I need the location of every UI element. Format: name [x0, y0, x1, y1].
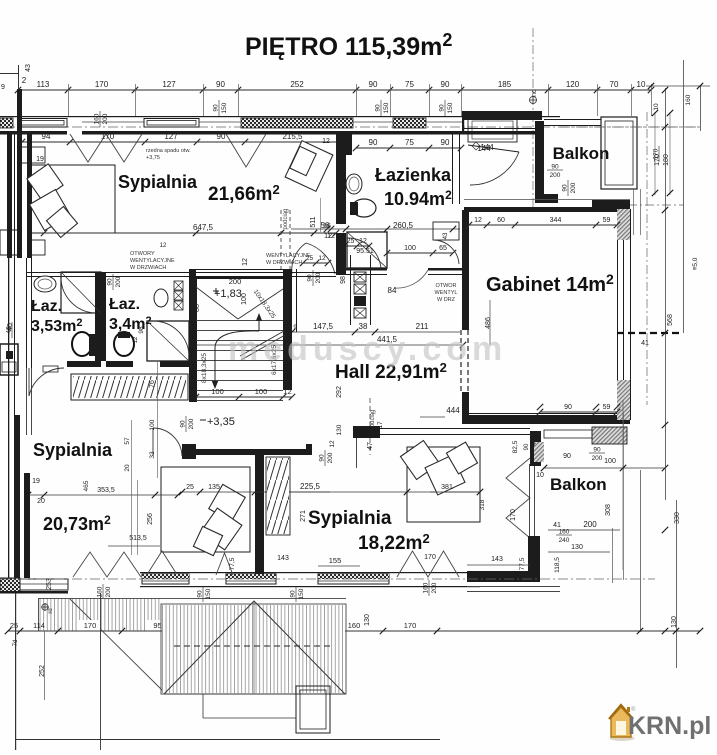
- svg-text:143: 143: [491, 556, 503, 563]
- svg-text:160: 160: [94, 113, 101, 124]
- svg-text:170: 170: [510, 509, 517, 521]
- svg-text:12: 12: [318, 255, 326, 262]
- svg-text:+3,35: +3,35: [207, 416, 235, 428]
- svg-text:200: 200: [188, 418, 195, 429]
- svg-text:77,5: 77,5: [229, 557, 236, 570]
- svg-text:100: 100: [255, 387, 268, 396]
- svg-text:95.51: 95.51: [356, 248, 374, 255]
- svg-text:77,5: 77,5: [519, 557, 526, 570]
- svg-text:84: 84: [388, 286, 397, 295]
- svg-text:W DRZ: W DRZ: [437, 297, 456, 303]
- svg-text:Gabinet 14m2: Gabinet 14m2: [486, 271, 614, 296]
- svg-text:KRN.pl: KRN.pl: [628, 712, 711, 740]
- svg-text:≡5,0: ≡5,0: [692, 257, 699, 270]
- svg-text:75: 75: [405, 138, 414, 147]
- svg-text:130: 130: [571, 544, 583, 551]
- svg-text:465: 465: [83, 480, 90, 491]
- svg-text:100: 100: [149, 419, 156, 430]
- svg-text:90: 90: [375, 104, 382, 112]
- svg-text:76: 76: [149, 380, 156, 388]
- svg-text:100: 100: [404, 245, 416, 252]
- svg-text:60: 60: [497, 217, 505, 224]
- svg-text:100: 100: [604, 458, 616, 465]
- svg-text:127: 127: [164, 132, 178, 141]
- svg-text:W DRZWIACH: W DRZWIACH: [266, 260, 302, 266]
- svg-text:200: 200: [102, 113, 109, 124]
- svg-text:127: 127: [162, 80, 176, 89]
- svg-text:9: 9: [1, 84, 5, 91]
- svg-text:10: 10: [637, 80, 646, 89]
- svg-text:200: 200: [115, 276, 122, 287]
- svg-text:57: 57: [124, 437, 131, 445]
- svg-text:100: 100: [211, 387, 224, 396]
- svg-text:90: 90: [593, 447, 601, 454]
- svg-text:41: 41: [641, 340, 649, 347]
- svg-text:25: 25: [10, 621, 18, 630]
- svg-text:meduscy.com: meduscy.com: [228, 330, 507, 368]
- svg-text:rd: rd: [48, 608, 54, 613]
- svg-text:381: 381: [441, 484, 453, 491]
- svg-text:43: 43: [25, 64, 32, 72]
- svg-text:WENTYL: WENTYL: [435, 290, 458, 296]
- svg-text:90: 90: [307, 274, 314, 282]
- svg-text:160: 160: [423, 582, 430, 593]
- svg-text:144: 144: [480, 143, 494, 152]
- svg-text:200: 200: [431, 582, 438, 593]
- svg-text:215,5: 215,5: [282, 132, 303, 141]
- svg-text:59: 59: [603, 404, 611, 411]
- svg-text:12: 12: [160, 243, 167, 249]
- svg-text:130: 130: [336, 424, 343, 435]
- svg-text:Sypialnia: Sypialnia: [118, 172, 198, 192]
- svg-text:25: 25: [306, 255, 314, 262]
- svg-text:114: 114: [33, 621, 45, 630]
- svg-text:130: 130: [671, 616, 678, 628]
- svg-text:33: 33: [149, 451, 156, 459]
- svg-text:160: 160: [348, 621, 361, 630]
- svg-text:Łaz.: Łaz.: [31, 298, 62, 315]
- svg-text:90: 90: [369, 138, 378, 147]
- svg-text:19: 19: [36, 156, 44, 163]
- svg-text:353,5: 353,5: [97, 487, 115, 494]
- svg-text:98: 98: [340, 276, 347, 284]
- svg-text:98: 98: [138, 326, 145, 334]
- svg-text:Sypialnia: Sypialnia: [33, 440, 113, 460]
- svg-text:90: 90: [216, 80, 225, 89]
- svg-text:150: 150: [205, 588, 212, 599]
- svg-text:444: 444: [446, 406, 460, 415]
- svg-text:160: 160: [559, 529, 570, 536]
- svg-text:12: 12: [242, 258, 249, 266]
- svg-text:+1,83: +1,83: [214, 288, 242, 300]
- svg-text:3,53m2: 3,53m2: [31, 317, 83, 335]
- svg-text:Sypialnia: Sypialnia: [308, 508, 392, 529]
- svg-text:90: 90: [319, 454, 326, 462]
- svg-text:25: 25: [186, 484, 194, 491]
- svg-text:59: 59: [603, 217, 611, 224]
- svg-text:170: 170: [424, 554, 436, 561]
- svg-text:568: 568: [667, 314, 674, 326]
- svg-text:143: 143: [277, 555, 289, 562]
- svg-text:135: 135: [208, 484, 220, 491]
- svg-text:20: 20: [37, 498, 45, 505]
- svg-text:200: 200: [105, 586, 112, 597]
- svg-text:19: 19: [32, 478, 40, 485]
- svg-text:90: 90: [217, 132, 226, 141]
- svg-text:200: 200: [550, 172, 561, 179]
- svg-text:Balkon: Balkon: [550, 475, 607, 494]
- svg-text:90: 90: [107, 278, 114, 286]
- svg-text:12: 12: [283, 387, 291, 396]
- svg-text:118,5: 118,5: [554, 557, 561, 573]
- svg-text:WENTYLACYJNE: WENTYLACYJNE: [266, 253, 311, 259]
- svg-text:200: 200: [592, 455, 603, 462]
- svg-text:511: 511: [310, 216, 317, 227]
- svg-text:W DRZWIACH: W DRZWIACH: [130, 265, 166, 271]
- svg-text:PIĘTRO 115,39m2: PIĘTRO 115,39m2: [245, 30, 452, 61]
- svg-text:90: 90: [439, 104, 446, 112]
- svg-text:170: 170: [84, 621, 97, 630]
- svg-text:10.94m2: 10.94m2: [384, 188, 452, 209]
- svg-text:90: 90: [441, 138, 450, 147]
- svg-text:170: 170: [95, 80, 109, 89]
- svg-text:+3,75: +3,75: [146, 155, 160, 161]
- svg-text:90: 90: [524, 443, 530, 450]
- svg-text:21,66m2: 21,66m2: [208, 182, 280, 205]
- svg-text:17: 17: [377, 421, 384, 429]
- svg-text:150: 150: [383, 102, 390, 113]
- svg-text:150: 150: [298, 588, 305, 599]
- svg-text:200: 200: [315, 272, 322, 283]
- svg-text:513,5: 513,5: [129, 535, 147, 542]
- svg-text:200: 200: [570, 182, 577, 193]
- svg-text:90: 90: [551, 164, 559, 171]
- svg-text:41: 41: [553, 522, 561, 529]
- svg-text:150: 150: [221, 102, 228, 113]
- svg-text:Łaz.: Łaz.: [109, 296, 140, 313]
- svg-text:647,5: 647,5: [193, 223, 214, 232]
- svg-text:12: 12: [133, 336, 139, 343]
- svg-text:43: 43: [443, 232, 449, 239]
- svg-text:41,5: 41,5: [532, 434, 538, 446]
- svg-text:90: 90: [290, 590, 297, 598]
- svg-text:rzedna spadu otw.: rzedna spadu otw.: [146, 148, 191, 154]
- svg-text:180: 180: [663, 154, 670, 166]
- svg-text:90: 90: [564, 404, 572, 411]
- svg-text:40: 40: [7, 323, 14, 331]
- svg-text:65: 65: [439, 245, 447, 252]
- svg-text:252: 252: [290, 80, 304, 89]
- svg-text:podciąg: podciąg: [283, 208, 289, 229]
- svg-text:OTWOR: OTWOR: [435, 283, 456, 289]
- svg-text:70: 70: [610, 80, 619, 89]
- svg-text:90: 90: [562, 184, 569, 192]
- svg-text:256: 256: [147, 513, 154, 525]
- svg-text:75: 75: [405, 80, 414, 89]
- svg-text:90: 90: [563, 453, 571, 460]
- svg-text:170: 170: [404, 621, 417, 630]
- svg-text:200: 200: [327, 452, 334, 463]
- svg-text:OTWORY: OTWORY: [130, 251, 155, 257]
- svg-text:225,5: 225,5: [300, 482, 321, 491]
- svg-text:10: 10: [653, 103, 660, 111]
- svg-text:95: 95: [153, 621, 161, 630]
- svg-text:12: 12: [322, 138, 330, 145]
- svg-text:12: 12: [474, 217, 482, 224]
- svg-text:20: 20: [124, 464, 131, 472]
- svg-text:240: 240: [559, 537, 570, 544]
- svg-text:3,4m2: 3,4m2: [109, 315, 152, 333]
- svg-text:47: 47: [367, 442, 374, 450]
- svg-text:12: 12: [329, 440, 336, 448]
- svg-text:308: 308: [605, 504, 612, 516]
- svg-text:292: 292: [336, 386, 343, 398]
- svg-text:185: 185: [498, 80, 512, 89]
- svg-text:160: 160: [685, 94, 692, 105]
- svg-text:330: 330: [674, 512, 681, 524]
- svg-text:486: 486: [485, 317, 492, 329]
- svg-text:90: 90: [197, 590, 204, 598]
- svg-text:18,22m2: 18,22m2: [358, 531, 430, 554]
- svg-text:130: 130: [364, 614, 371, 626]
- svg-text:344: 344: [550, 217, 562, 224]
- svg-text:100: 100: [241, 293, 248, 305]
- svg-text:8x18,3x25: 8x18,3x25: [201, 353, 208, 383]
- svg-text:90: 90: [441, 80, 450, 89]
- svg-text:2: 2: [22, 76, 27, 85]
- svg-text:20,73m2: 20,73m2: [43, 513, 111, 534]
- svg-text:WENTYLACYJNE: WENTYLACYJNE: [130, 258, 175, 264]
- svg-text:150: 150: [447, 102, 454, 113]
- svg-text:271: 271: [300, 510, 307, 522]
- svg-text:82,5: 82,5: [512, 440, 519, 453]
- svg-text:10: 10: [536, 472, 544, 479]
- svg-text:Łazienka: Łazienka: [375, 165, 452, 185]
- svg-text:94: 94: [42, 132, 51, 141]
- svg-text:90: 90: [213, 104, 220, 112]
- svg-text:90: 90: [180, 420, 187, 428]
- svg-text:12: 12: [324, 233, 332, 240]
- svg-text:252: 252: [39, 665, 46, 677]
- svg-text:25: 25: [347, 238, 355, 245]
- svg-text:155: 155: [329, 556, 342, 565]
- svg-text:90: 90: [369, 80, 378, 89]
- svg-text:120: 120: [566, 80, 580, 89]
- svg-text:200: 200: [583, 520, 597, 529]
- svg-text:113: 113: [37, 80, 50, 89]
- svg-text:nd: nd: [531, 89, 538, 97]
